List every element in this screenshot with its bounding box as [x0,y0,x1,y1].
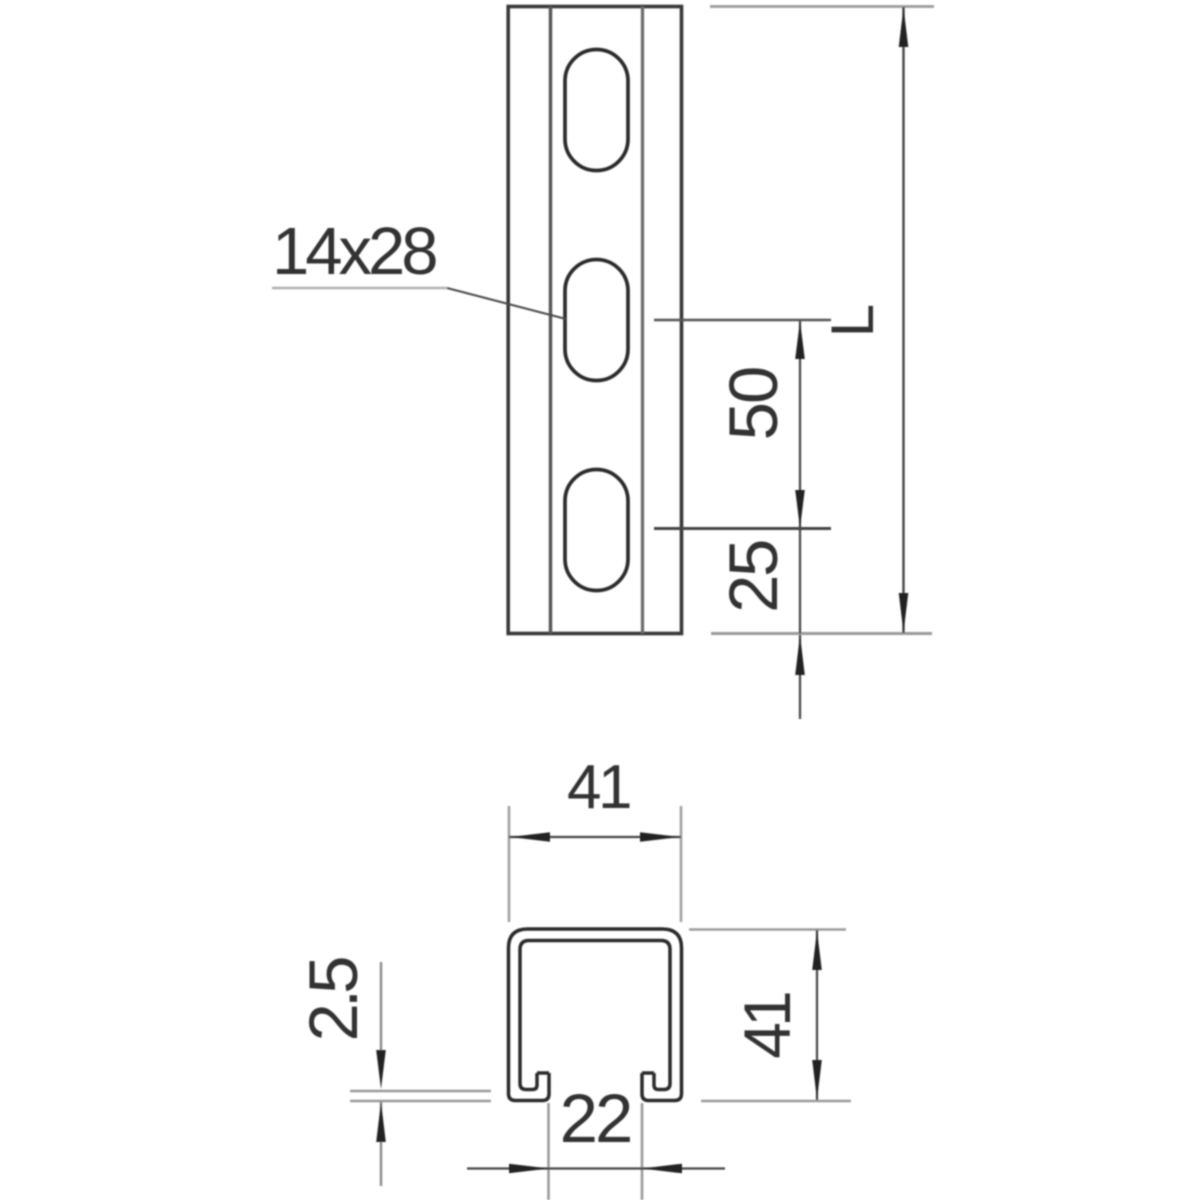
svg-text:L: L [819,304,886,337]
svg-text:41: 41 [567,753,630,822]
svg-text:22: 22 [560,1080,631,1157]
svg-text:2.5: 2.5 [295,958,372,1042]
svg-text:50: 50 [715,368,792,441]
svg-text:25: 25 [715,541,792,613]
svg-text:41: 41 [730,993,804,1059]
svg-text:14x28: 14x28 [272,214,436,289]
